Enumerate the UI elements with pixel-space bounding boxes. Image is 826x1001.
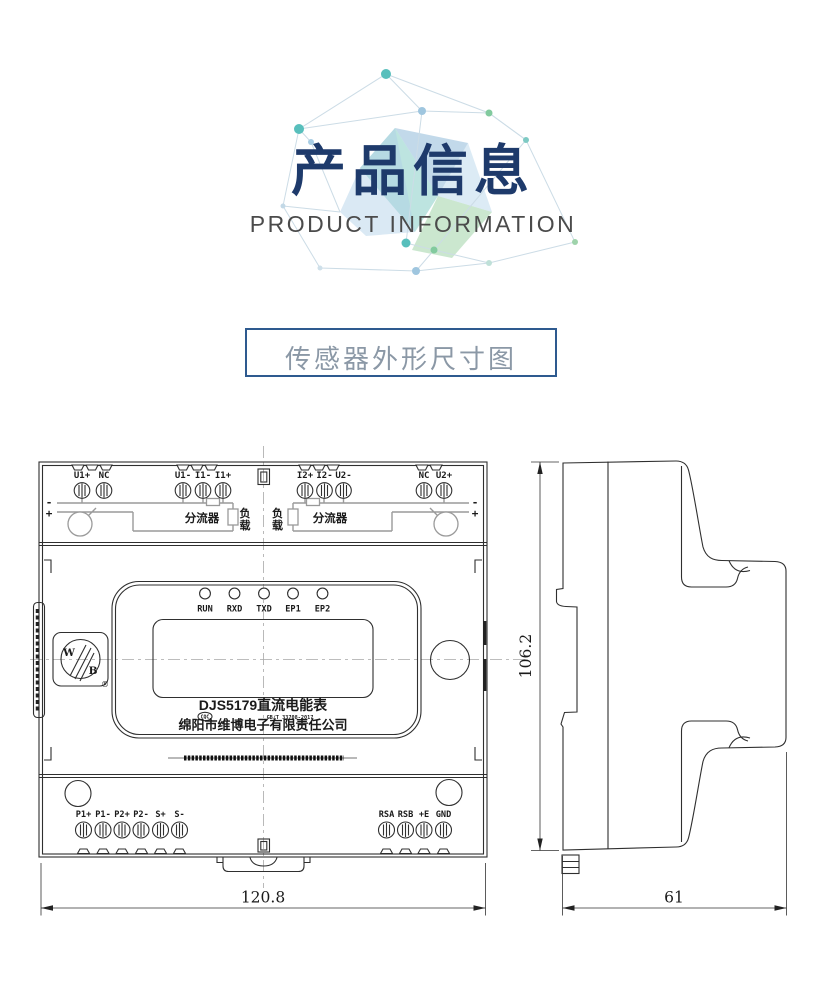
mounting-hole-bottom-left [65,781,91,807]
terminal-label: RSA [379,810,395,820]
terminal-label: S+ [155,810,165,820]
load-label-left: 负载 [240,506,251,532]
front-view: - + - + 分流器 分流器 负载 负载 [34,462,488,872]
terminal-label: NC [419,471,430,481]
shunt-label-left: 分流器 [185,511,220,525]
terminal-label: I2+ [297,471,314,481]
depth-dimension-value: 61 [664,889,684,907]
led-label: EP2 [315,605,331,615]
terminal-label: U2- [335,471,351,481]
height-dimension-value: 106.2 [517,634,535,678]
shunt-label-right: 分流器 [313,511,348,525]
mounting-hole-top-right [436,780,462,806]
terminal-label: RSB [398,810,414,820]
led-label: RUN [197,605,213,615]
company-name: 绵阳市维博电子有限责任公司 [178,718,347,733]
load-label-right: 负载 [272,506,283,532]
display-window [153,620,373,698]
logo-letter-w: W [62,647,75,659]
terminal-label: U1+ [74,471,91,481]
terminal-label: I2- [316,471,332,481]
terminal-label: U1- [175,471,191,481]
terminal-label: NC [99,471,110,481]
terminal-label: GND [436,810,452,820]
polarity-plus-right: + [472,507,479,520]
cover-divider-lines [39,543,487,778]
terminal-label: I1+ [215,471,232,481]
terminal-label: U2+ [436,471,453,481]
width-dimension-value: 120.8 [241,889,285,907]
polarity-plus-left: + [46,507,53,520]
terminal-label: P1+ [76,810,92,820]
led-label: EP1 [285,605,301,615]
dimension-drawing: - + - + 分流器 分流器 负载 负载 [0,0,826,1001]
terminal-label: I1- [195,471,211,481]
led-label: RXD [227,605,243,615]
terminal-label: P1- [95,810,111,820]
led-label: TXD [256,605,272,615]
side-view [557,461,787,874]
wiring-diagram: - + - + 分流器 分流器 负载 负载 [46,496,479,536]
wb-logo: W B ® [53,633,109,690]
terminal-label: P2- [133,810,149,820]
product-name: DJS5179直流电能表 [199,697,328,713]
product-info-page: 产品信息 PRODUCT INFORMATION 传感器外形尺寸图 [0,0,826,1001]
terminal-label: P2+ [114,810,130,820]
terminal-label: S- [174,810,184,820]
side-clip-block [562,855,579,874]
registered-mark: ® [101,680,109,689]
mounting-hole-right [431,641,470,680]
logo-letter-b: B [89,665,98,677]
terminal-label: +E [419,810,429,820]
height-dimension: 106.2 [517,462,559,851]
